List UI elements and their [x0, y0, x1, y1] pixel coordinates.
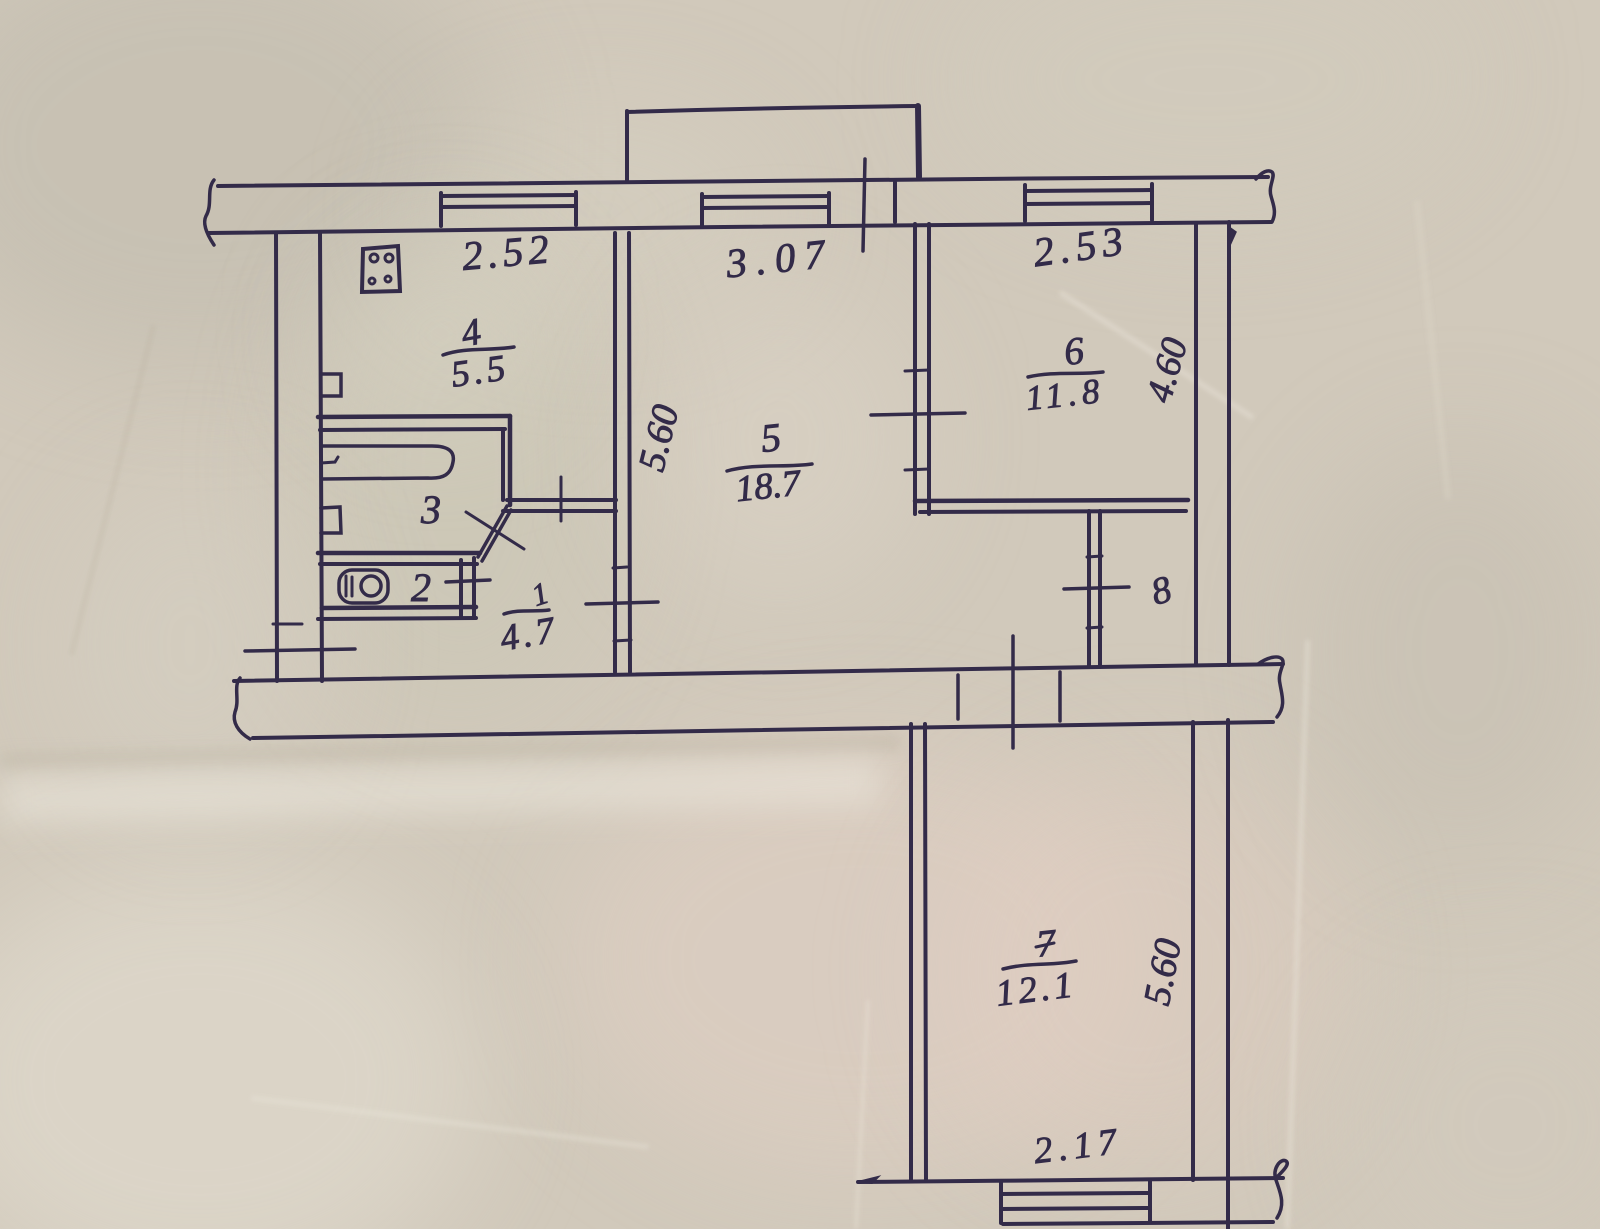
svg-text:5: 5 [759, 414, 784, 461]
svg-text:2.17: 2.17 [1032, 1121, 1125, 1173]
svg-text:6: 6 [1062, 329, 1086, 374]
svg-text:5.5: 5.5 [449, 347, 512, 396]
svg-text:2: 2 [411, 565, 431, 610]
svg-text:5.60: 5.60 [1136, 935, 1190, 1008]
svg-text:2.52: 2.52 [460, 225, 555, 279]
svg-text:5.60: 5.60 [631, 401, 688, 476]
svg-text:11.8: 11.8 [1024, 371, 1106, 418]
svg-text:3: 3 [420, 487, 441, 532]
svg-text:12.1: 12.1 [994, 964, 1079, 1015]
svg-text:8: 8 [1147, 568, 1176, 613]
svg-text:4.7: 4.7 [497, 609, 561, 659]
svg-text:4.60: 4.60 [1139, 333, 1196, 407]
svg-text:3.07: 3.07 [723, 230, 836, 287]
svg-text:18.7: 18.7 [734, 463, 804, 511]
svg-text:1: 1 [527, 575, 553, 613]
